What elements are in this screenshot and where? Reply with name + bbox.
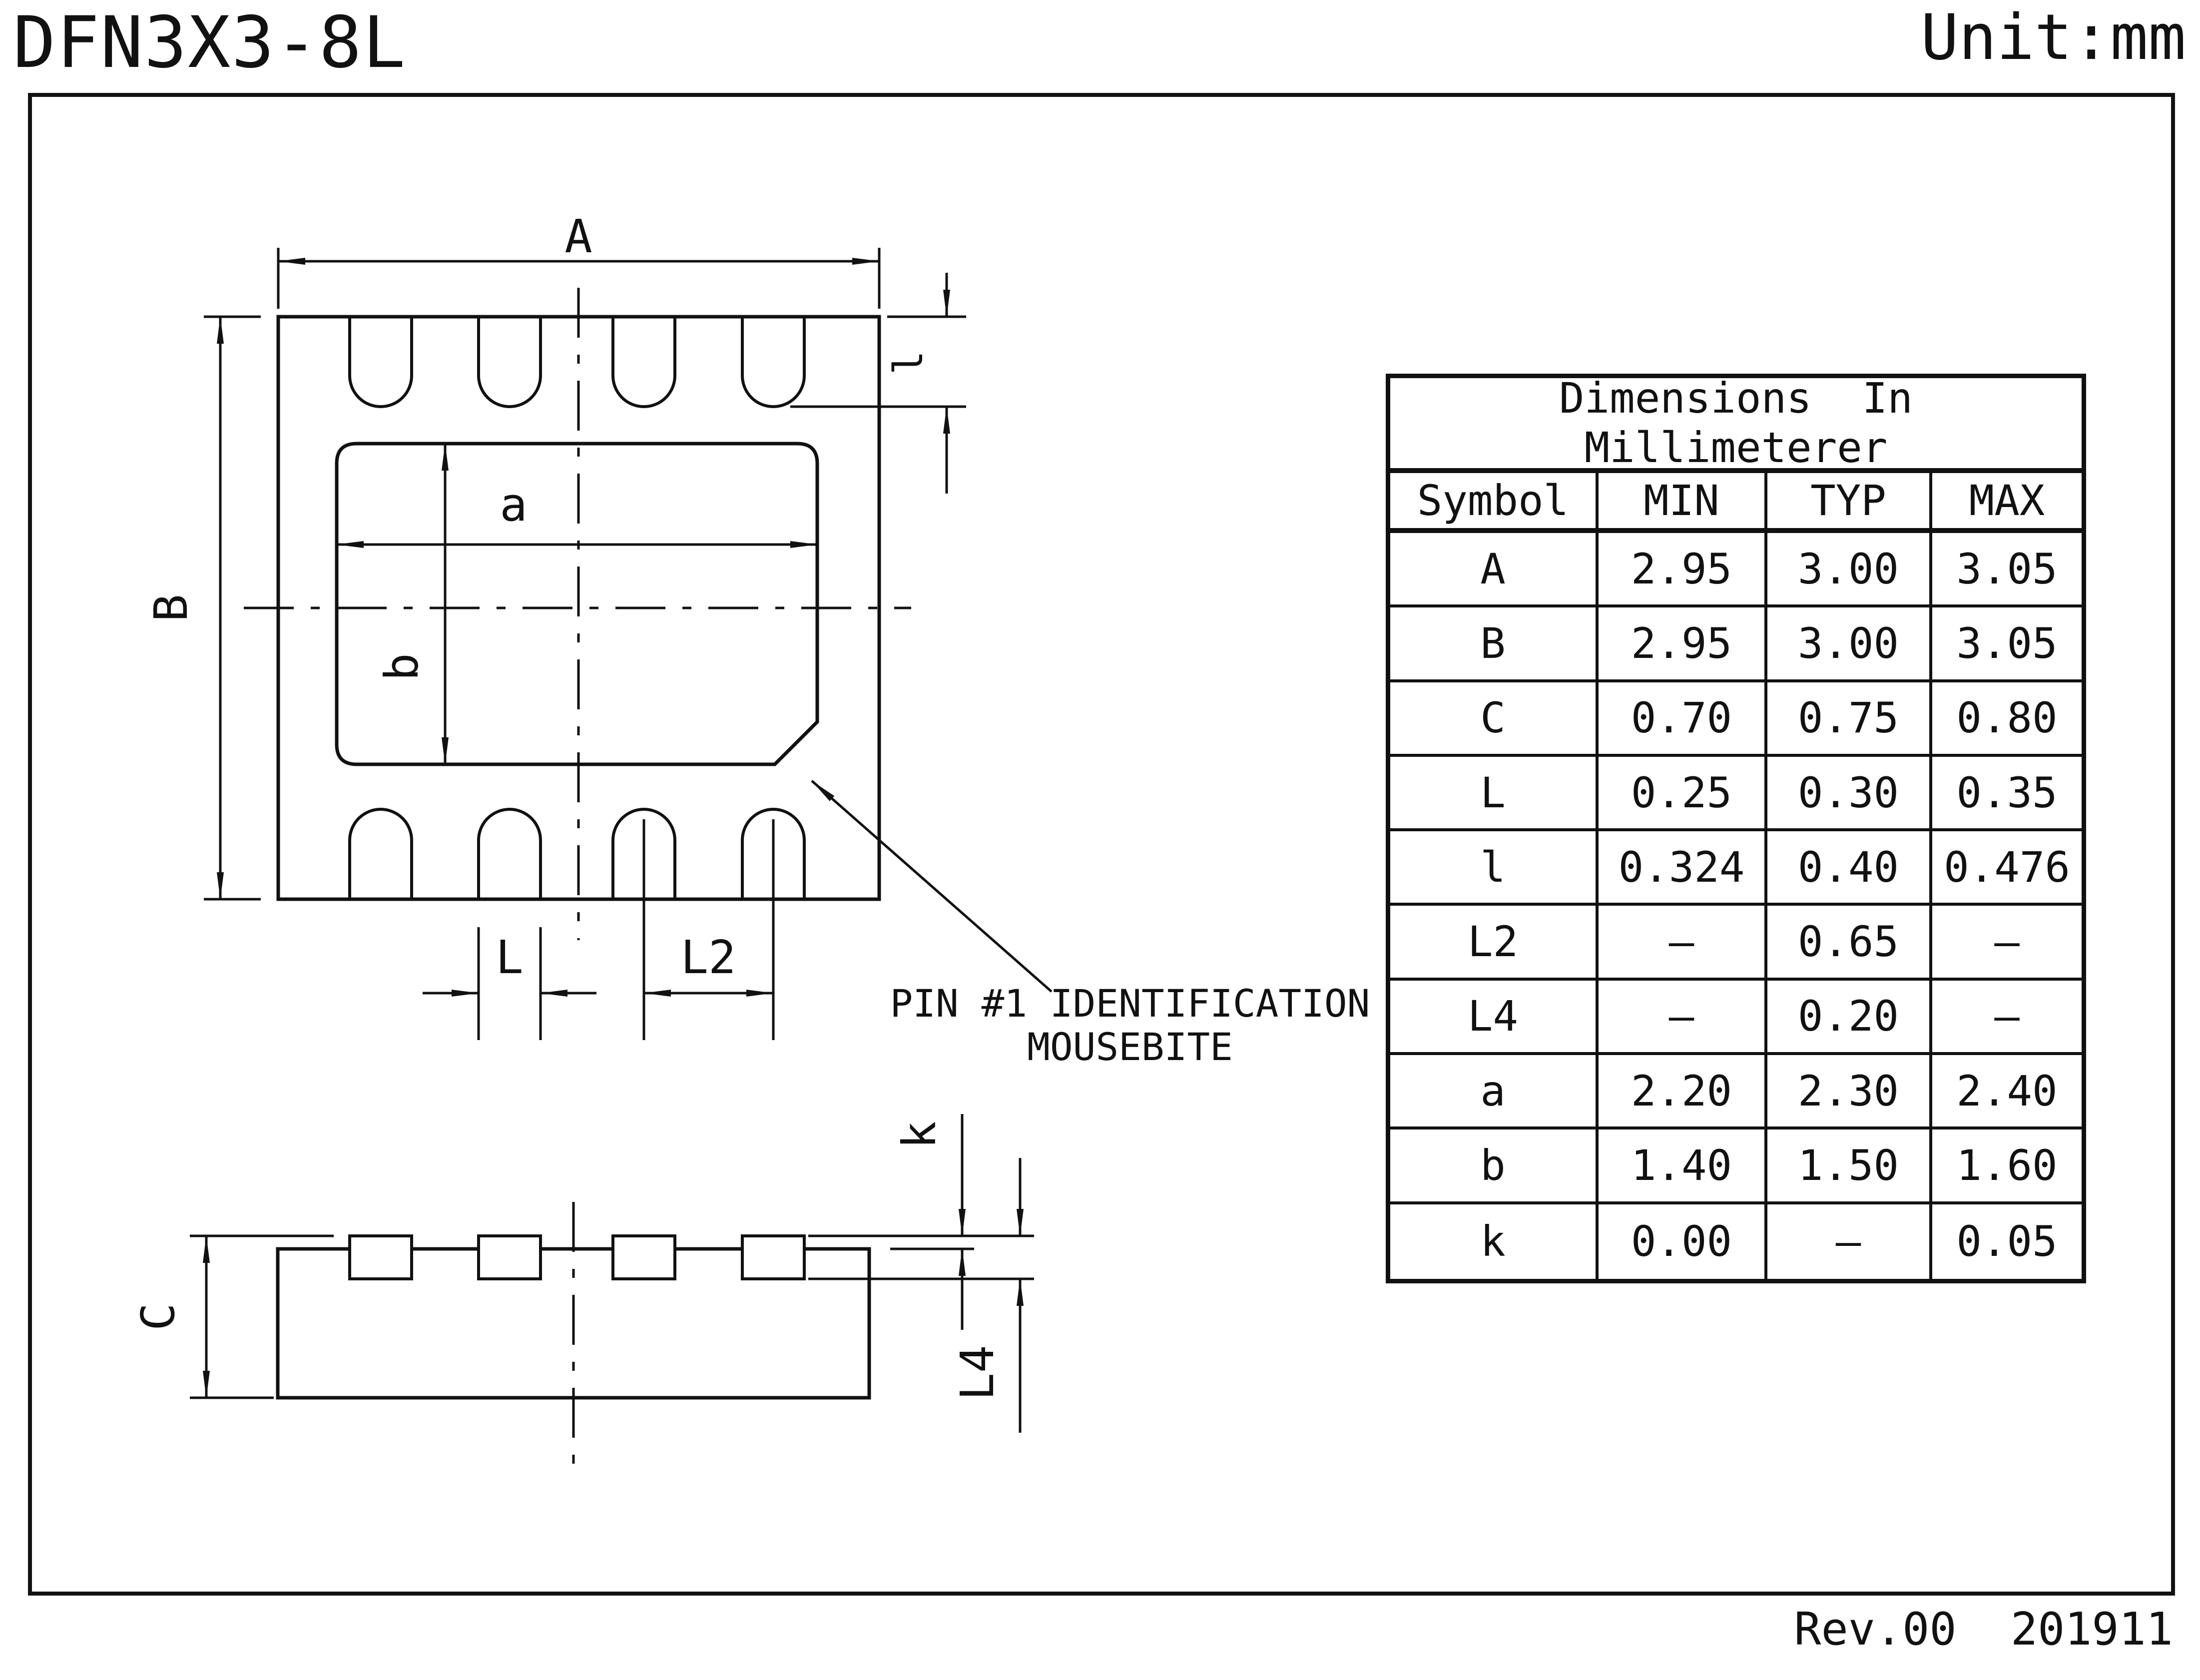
table-cell: – bbox=[1932, 981, 2082, 1055]
dim-label-L2: L2 bbox=[681, 931, 736, 984]
table-cell: a bbox=[1390, 1055, 1599, 1129]
top-view bbox=[244, 288, 911, 940]
centerlines bbox=[244, 288, 911, 940]
dim-label-L: L bbox=[496, 931, 523, 984]
table-cell: 2.20 bbox=[1599, 1055, 1767, 1129]
drawing-sheet: DFN3X3-8L Unit:mm bbox=[0, 0, 2200, 1680]
mousebite-note-line2: MOUSEBITE bbox=[1027, 1025, 1233, 1069]
bottom-pads bbox=[350, 809, 804, 899]
table-cell: 2.95 bbox=[1599, 607, 1767, 682]
table-title: Dimensions InMillimeterer bbox=[1390, 378, 2082, 473]
table-header-max: MAX bbox=[1932, 473, 2082, 533]
table-cell: 3.00 bbox=[1767, 533, 1932, 607]
table-cell: B bbox=[1390, 607, 1599, 682]
table-cell: 1.40 bbox=[1599, 1129, 1767, 1204]
side-extension-lines bbox=[808, 1236, 1034, 1279]
table-cell: 3.05 bbox=[1932, 533, 2082, 607]
table-title-line2: Millimeterer bbox=[1585, 423, 1888, 473]
table-cell: 0.25 bbox=[1599, 757, 1767, 831]
table-cell: – bbox=[1767, 1204, 1932, 1279]
table-cell: 0.00 bbox=[1599, 1204, 1767, 1279]
table-cell: 0.30 bbox=[1767, 757, 1932, 831]
table-cell: 0.80 bbox=[1932, 682, 2082, 757]
table-cell: 3.00 bbox=[1767, 607, 1932, 682]
table-title-line1: Dimensions In bbox=[1559, 378, 1913, 423]
dim-label-b: b bbox=[375, 653, 429, 680]
dimensions-table: Dimensions InMillimeterer Symbol MIN TYP… bbox=[1386, 374, 2086, 1283]
dim-L2 bbox=[644, 819, 773, 1040]
table-cell: k bbox=[1390, 1204, 1599, 1279]
table-cell: 1.50 bbox=[1767, 1129, 1932, 1204]
top-pads bbox=[350, 317, 804, 407]
dim-label-A: A bbox=[564, 210, 592, 263]
dim-label-l: l bbox=[885, 351, 932, 375]
dim-label-a: a bbox=[500, 478, 527, 532]
dim-label-B: B bbox=[144, 594, 198, 621]
table-cell: – bbox=[1599, 906, 1767, 980]
table-cell: b bbox=[1390, 1129, 1599, 1204]
dim-C bbox=[190, 1236, 334, 1398]
table-cell: 3.05 bbox=[1932, 607, 2082, 682]
table-header-min: MIN bbox=[1599, 473, 1767, 533]
table-cell: 0.476 bbox=[1932, 831, 2082, 906]
table-cell: 2.95 bbox=[1599, 533, 1767, 607]
table-cell: 2.30 bbox=[1767, 1055, 1932, 1129]
table-cell: 0.324 bbox=[1599, 831, 1767, 906]
revision-label: Rev.00 201911 bbox=[1794, 1605, 2173, 1654]
side-pads bbox=[350, 1236, 804, 1279]
table-cell: L2 bbox=[1390, 906, 1599, 980]
table-cell: 0.40 bbox=[1767, 831, 1932, 906]
table-cell: – bbox=[1932, 906, 2082, 980]
table-cell: L4 bbox=[1390, 981, 1599, 1055]
table-cell: l bbox=[1390, 831, 1599, 906]
dim-label-L4: L4 bbox=[951, 1345, 1004, 1401]
table-header-typ: TYP bbox=[1767, 473, 1932, 533]
table-cell: – bbox=[1599, 981, 1767, 1055]
table-cell: 0.70 bbox=[1599, 682, 1767, 757]
mousebite-leader-arrow bbox=[812, 781, 1052, 992]
dim-label-C: C bbox=[131, 1303, 185, 1330]
table-cell: 0.35 bbox=[1932, 757, 2082, 831]
side-view bbox=[278, 1202, 869, 1480]
table-cell: 2.40 bbox=[1932, 1055, 2082, 1129]
table-cell: A bbox=[1390, 533, 1599, 607]
exposed-pad bbox=[337, 444, 817, 764]
table-cell: 1.60 bbox=[1932, 1129, 2082, 1204]
table-cell: L bbox=[1390, 757, 1599, 831]
table-cell: 0.05 bbox=[1932, 1204, 2082, 1279]
table-cell: 0.65 bbox=[1767, 906, 1932, 980]
table-cell: 0.75 bbox=[1767, 682, 1932, 757]
dim-label-k: k bbox=[893, 1121, 946, 1148]
table-cell: 0.20 bbox=[1767, 981, 1932, 1055]
table-header-symbol: Symbol bbox=[1390, 473, 1599, 533]
table-cell: C bbox=[1390, 682, 1599, 757]
mousebite-note-line1: PIN #1 IDENTIFICATION bbox=[890, 981, 1370, 1026]
